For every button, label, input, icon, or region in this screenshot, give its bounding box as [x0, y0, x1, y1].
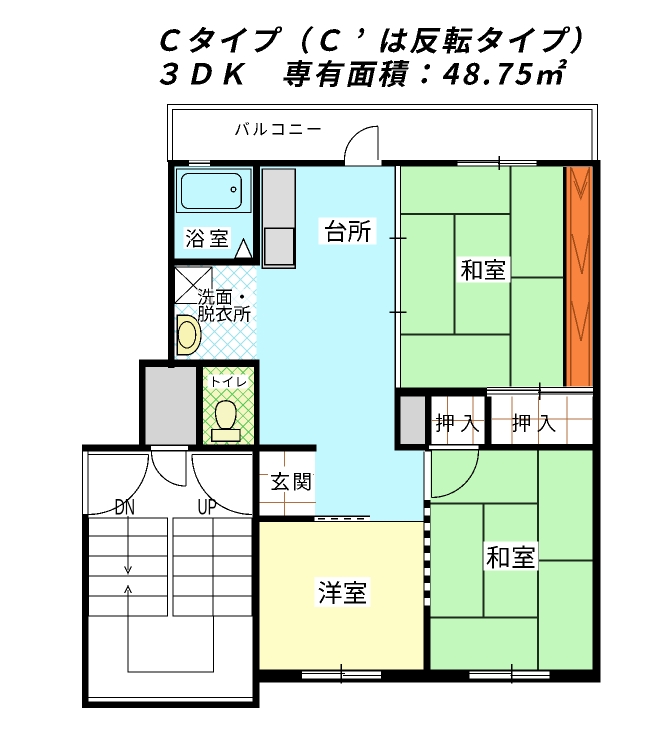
svg-text:DN: DN: [115, 495, 136, 520]
svg-text:UP: UP: [198, 495, 218, 520]
